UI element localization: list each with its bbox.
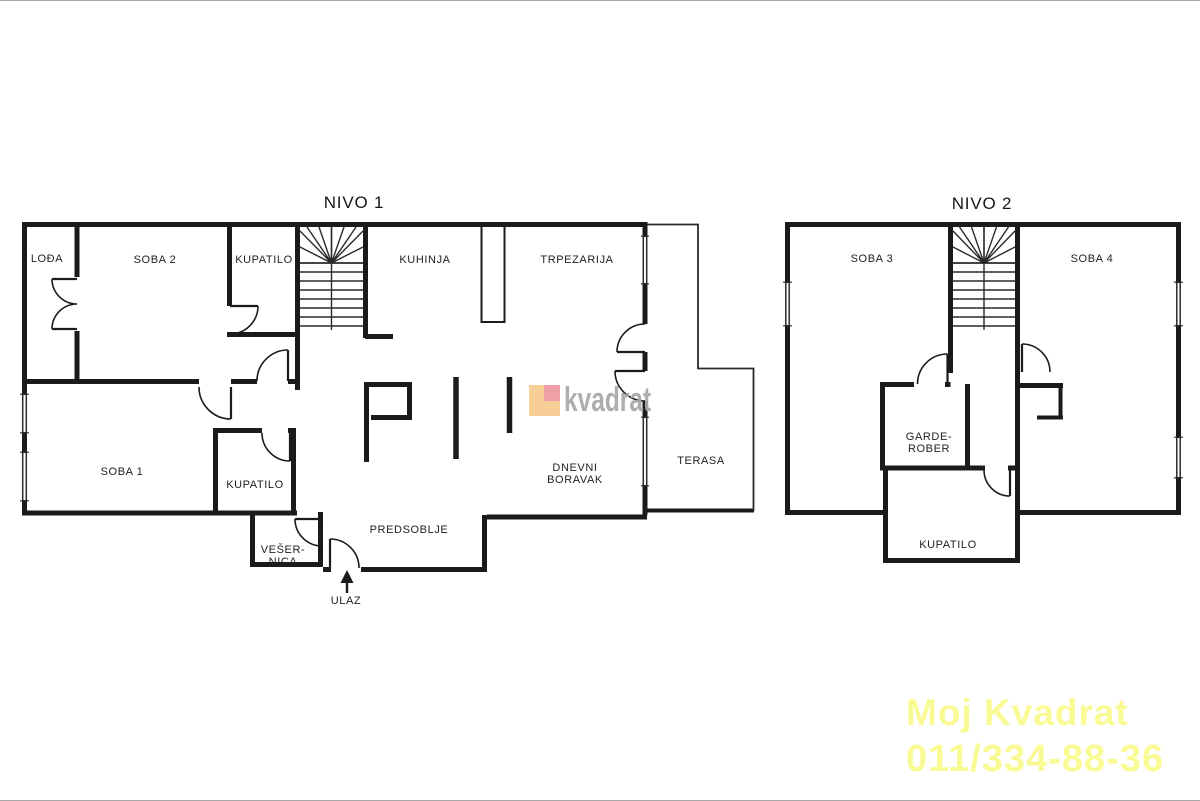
agency-name: Moj Kvadrat [906, 689, 1164, 736]
room-label-lodja: LOĐA [7, 253, 87, 265]
agency-phone: 011/334-88-36 [906, 736, 1164, 783]
nivo2-closet-niche [1037, 388, 1063, 418]
kitchen-duct [482, 226, 505, 322]
room-label-vesernica-line1: VEŠER- [243, 545, 323, 557]
room-label-garderober-line2: ROBER [889, 443, 969, 455]
room-label-kupatilo-n1-mid: KUPATILO [215, 479, 295, 491]
room-label-kupatilo-n2: KUPATILO [908, 539, 988, 551]
floor-plan-canvas: NIVO 1 NIVO 2 LOĐA SOBA 2 KUPATILO KUHIN… [0, 0, 1200, 801]
room-label-soba3: SOBA 3 [832, 253, 912, 265]
level-title-nivo1: NIVO 1 [279, 193, 429, 213]
room-label-kupatilo-n1-top: KUPATILO [224, 254, 304, 266]
entrance-arrow-icon [341, 570, 354, 593]
nivo2-walls [785, 222, 1181, 563]
stair-fan-treads [953, 227, 1015, 263]
room-label-ulaz: ULAZ [306, 595, 386, 607]
room-label-soba2: SOBA 2 [115, 254, 195, 266]
kvadrat-logo-accent-square [544, 385, 560, 401]
terrace-outline [648, 225, 754, 512]
room-label-kuhinja: KUHINJA [385, 254, 465, 266]
room-label-garderober: GARDE- ROBER [889, 431, 969, 455]
room-label-trpezarija: TRPEZARIJA [527, 254, 627, 266]
room-label-vesernica: VEŠER- NICA [243, 545, 323, 568]
kvadrat-watermark-text: kvadrat [564, 381, 651, 420]
room-label-vesernica-line2: NICA [243, 557, 323, 569]
room-label-terasa: TERASA [661, 455, 741, 467]
room-label-dnevni-line1: DNEVNI [535, 463, 615, 475]
nivo1-doors [52, 279, 645, 568]
room-label-soba1: SOBA 1 [82, 466, 162, 478]
agency-watermark: Moj Kvadrat 011/334-88-36 [906, 689, 1164, 783]
room-label-predsoblje: PREDSOBLJE [359, 524, 459, 536]
nivo1-staircase [300, 227, 363, 330]
room-label-dnevni-boravak: DNEVNI BORAVAK [535, 463, 615, 486]
nivo2-windows [783, 282, 1183, 478]
room-label-garderober-line1: GARDE- [889, 431, 969, 443]
nivo2-staircase [953, 227, 1015, 330]
stair-fan-treads [300, 227, 363, 263]
room-label-soba4: SOBA 4 [1052, 253, 1132, 265]
room-label-dnevni-line2: BORAVAK [535, 475, 615, 487]
nivo2-doors [918, 344, 1051, 496]
kvadrat-logo [529, 385, 560, 416]
level-title-nivo2: NIVO 2 [907, 194, 1057, 214]
nivo1-partition-walls [456, 377, 510, 459]
